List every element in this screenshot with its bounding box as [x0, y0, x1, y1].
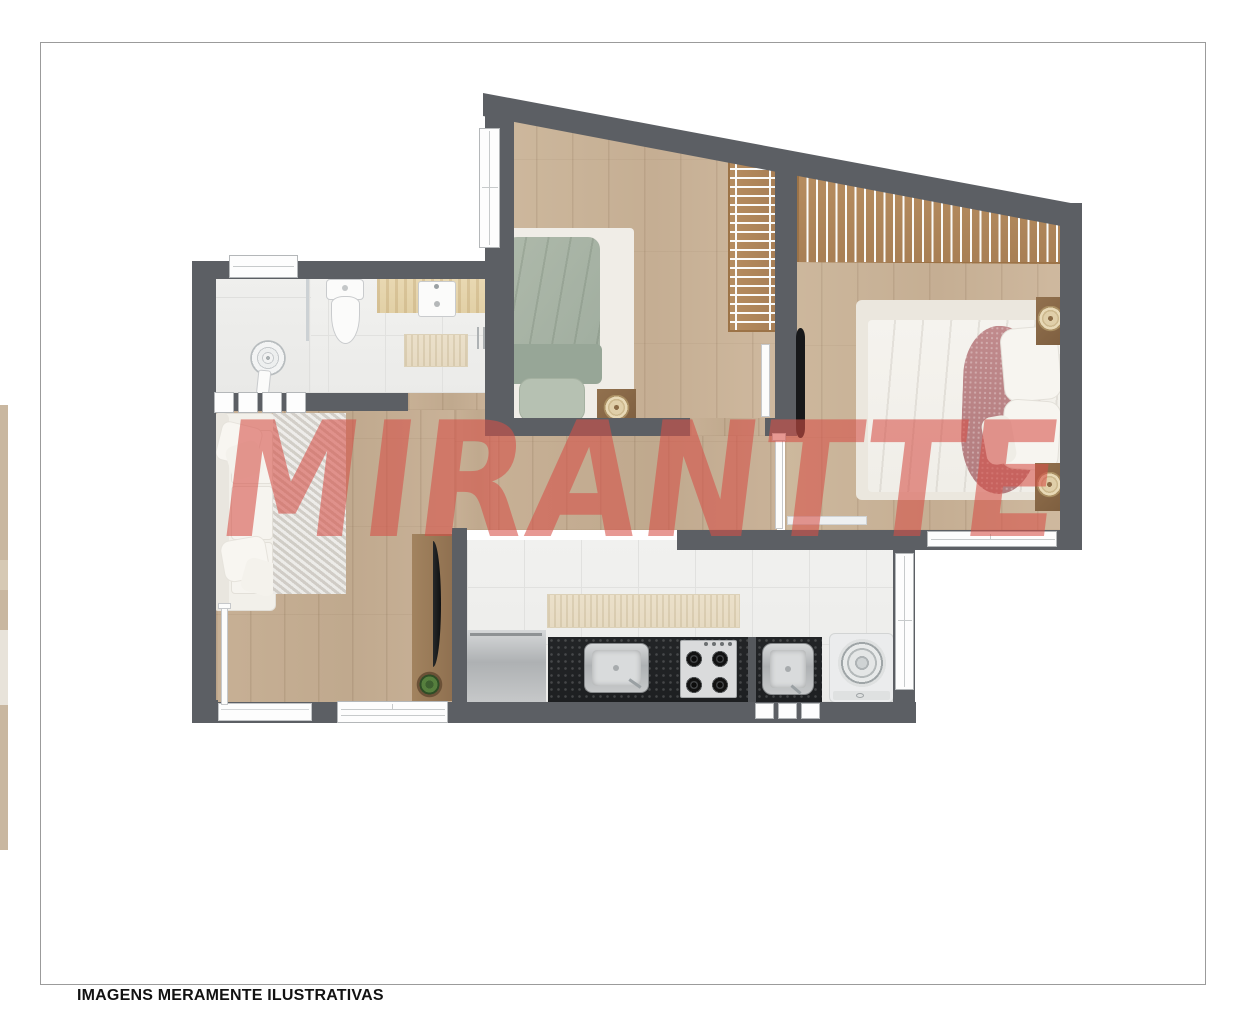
window-mullion [931, 539, 1055, 540]
service-area-window [895, 553, 914, 690]
wall-bedroom1-bottom [498, 418, 690, 436]
left-edge-image-bleed [0, 405, 8, 850]
wall-bedrooms-divider [775, 168, 797, 436]
window-mullion [341, 709, 445, 710]
living-room-window [337, 701, 448, 723]
disclaimer-text: IMAGENS MERAMENTE ILUSTRATIVAS [77, 987, 384, 1005]
bathroom-vent-window [238, 392, 258, 413]
master-door-jamb [772, 433, 786, 441]
service-vent-window [755, 703, 774, 719]
bathroom-window [229, 255, 298, 278]
window-mullion [904, 556, 905, 687]
service-vent-window [778, 703, 797, 719]
cooktop-knob [704, 642, 708, 646]
counter-divider-wall [748, 637, 756, 702]
bathroom-vent-window [214, 392, 234, 413]
window-mullion [341, 715, 445, 716]
master-bedroom-door-leaf [775, 440, 783, 529]
window-mullion [233, 266, 294, 267]
window-mullion [482, 187, 498, 188]
service-vent-window [801, 703, 820, 719]
bathroom-door-threshold [408, 393, 487, 410]
floor-plan-page: MIRANTTE IMAGENS MERAMENTE ILUSTRATIVAS [0, 0, 1234, 1009]
refrigerator-handle [470, 633, 542, 636]
living-room-rug [273, 413, 346, 594]
bathroom-sink-drain [434, 301, 440, 307]
cooktop-knob [728, 642, 732, 646]
bath-mat [404, 334, 468, 367]
bathroom-vent-window [286, 392, 306, 413]
towel-hook [477, 327, 479, 349]
living-room-sliding-door [218, 703, 312, 721]
bedroom1-door-leaf [761, 344, 770, 417]
bathroom-vent-window [262, 392, 282, 413]
toilet-flush-button [342, 285, 348, 291]
wall-bottom-corner [192, 700, 218, 723]
cooktop-burner [685, 650, 703, 668]
living-door-jamb [218, 603, 231, 609]
wall-left-exterior [192, 261, 216, 723]
wall-living-kitchen-stub [452, 528, 467, 703]
single-bed-duvet [505, 237, 600, 349]
washer-dial [856, 693, 864, 698]
cooktop-burner [685, 676, 703, 694]
laundry-sink-drain [785, 666, 791, 672]
door-track [221, 709, 309, 710]
window-mullion [392, 704, 393, 710]
master-bedroom-window [927, 531, 1057, 547]
bathroom-faucet [434, 284, 439, 289]
left-edge-image-bleed-patch [0, 630, 8, 705]
potted-plant [416, 671, 443, 698]
master-low-shelf [787, 516, 867, 525]
washing-machine-lid [838, 639, 886, 687]
bedroom1-door-threshold [690, 418, 767, 436]
cooktop-knob [712, 642, 716, 646]
refrigerator [467, 630, 546, 702]
sofa-cushion [231, 486, 273, 540]
cooktop-knob [720, 642, 724, 646]
living-room-door-leaf [221, 608, 228, 705]
single-bed-pillow [519, 378, 585, 422]
wall-right-exterior [1060, 203, 1082, 548]
bedroom1-window [479, 128, 500, 248]
shower-glass-partition [306, 279, 309, 341]
cooktop-burner [711, 676, 729, 694]
master-wall-tv [796, 328, 805, 438]
master-lamp [1036, 472, 1063, 499]
window-mullion [489, 131, 490, 245]
left-edge-image-bleed-patch [0, 560, 8, 590]
cooktop-burner [711, 650, 729, 668]
bedroom1-closet-slat-panel [728, 158, 778, 332]
window-mullion [990, 534, 991, 540]
hall-floor [498, 436, 777, 530]
window-mullion [898, 620, 912, 621]
kitchen-runner-rug [547, 594, 740, 628]
kitchen-sink-drain [613, 665, 619, 671]
